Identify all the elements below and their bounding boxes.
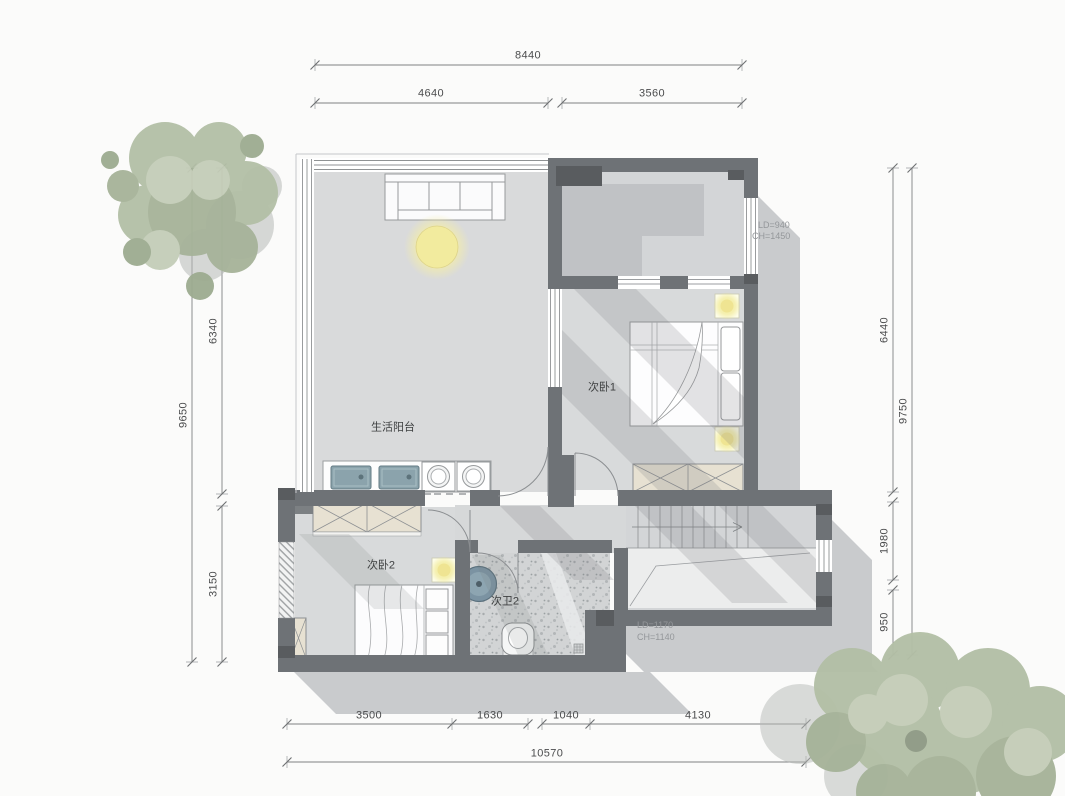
dim-bottom-seg4: 4130 [685,711,711,722]
dim-bottom-total: 10570 [531,749,564,760]
tree-top-left [101,122,282,300]
sink [331,466,371,489]
laundry-counter [323,461,491,494]
bedroom2-wardrobe [295,503,421,536]
room-label-bathroom2: 次卫2 [491,597,519,608]
washing-machine [422,462,455,491]
dim-bottom-seg1: 3500 [356,711,382,722]
dim-right-total: 9750 [899,398,910,424]
room-label-bedroom2: 次卧2 [367,561,395,572]
dim-bottom-seg2: 1630 [477,711,503,722]
room-label-laundry-balcony: 生活阳台 [371,423,415,434]
wall-light [713,292,741,320]
dim-top-total: 8440 [515,51,541,62]
dim-right-seg1: 6440 [880,317,891,343]
washing-machine [457,462,490,491]
room-label-bedroom1: 次卧1 [588,383,616,394]
floor-drain [574,644,583,653]
bedroom2-window [279,542,294,618]
dim-left-seg1: 6340 [209,318,220,344]
sink [379,466,419,489]
floor-plan-canvas: 8440 4640 3560 9650 6340 3150 6440 1980 … [0,0,1065,796]
wall-light [430,556,458,584]
bedroom1-partition-window [548,289,562,387]
annotation-upper-ch: CH=1450 [752,232,790,242]
sofa [385,174,505,220]
dim-left-total: 9650 [179,402,190,428]
annotation-lower-ld: LD=1170 [637,621,673,631]
annotation-lower-ch: CH=1140 [637,633,675,643]
annotation-upper-ld: LD=940 [758,221,790,231]
dim-left-seg2: 3150 [209,571,220,597]
dim-top-seg2: 3560 [639,89,665,100]
dim-right-seg2: 1980 [880,528,891,554]
dim-right-seg3: 950 [880,612,891,632]
dim-top-seg1: 4640 [418,89,444,100]
dim-bottom-seg3: 1040 [553,711,579,722]
stair-hall-window [816,540,832,572]
ceiling-light [404,214,470,280]
